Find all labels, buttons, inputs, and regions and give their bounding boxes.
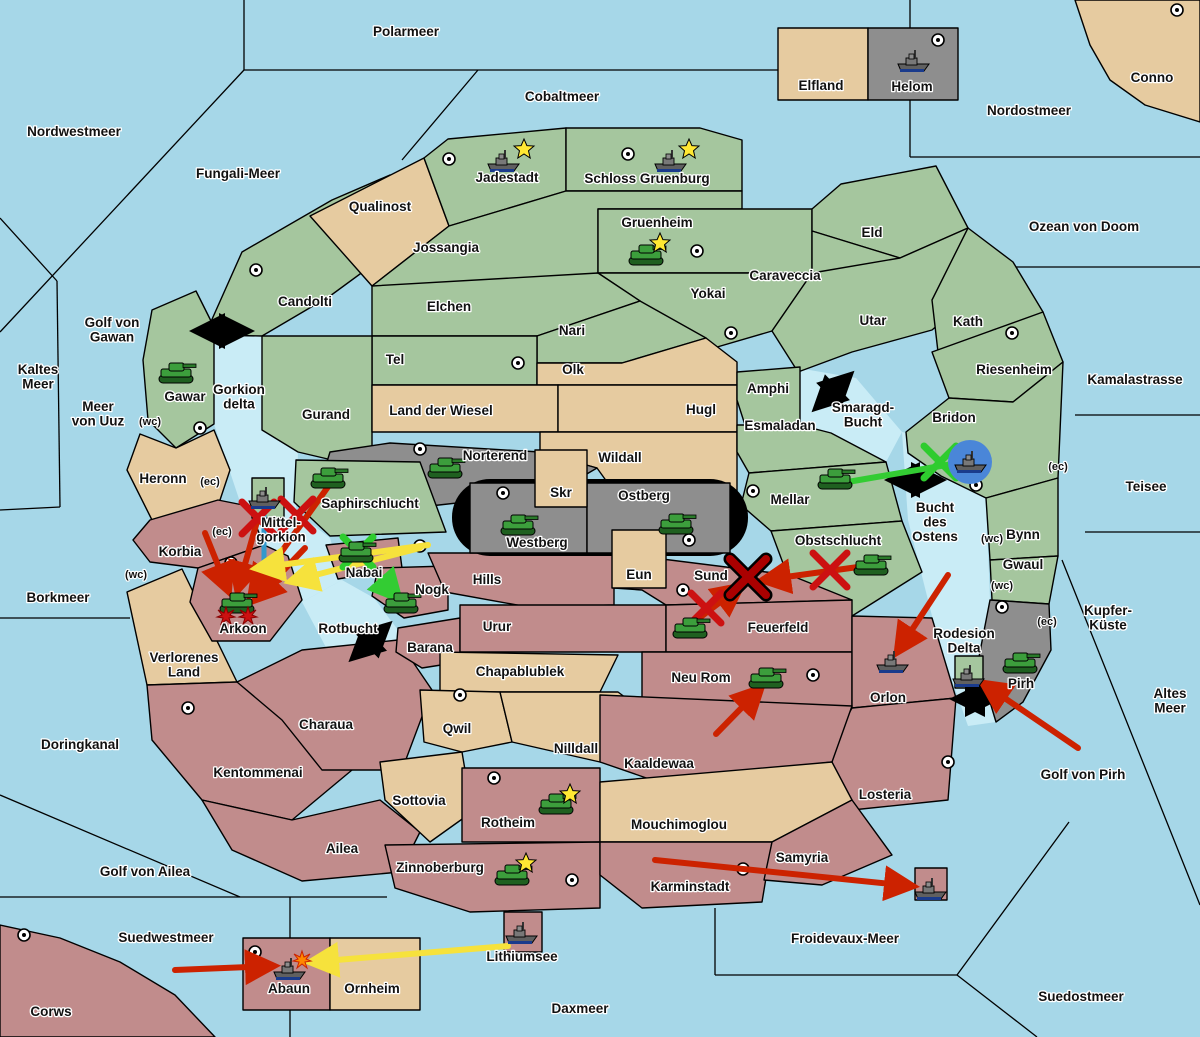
map-label: Elfland [798,78,843,93]
map-label: Hugl [686,402,716,417]
map-label: (ec) [200,476,220,488]
capital-marker [512,357,524,369]
map-label: Nabai [346,565,383,580]
map-label: Kath [953,314,983,329]
map-label: Daxmeer [551,1001,609,1016]
map-label: Doringkanal [41,737,119,752]
map-label: Charaua [299,717,354,732]
map-label: Rotheim [481,815,535,830]
map-label: Westberg [506,535,567,550]
map-label: Qualinost [349,199,412,214]
red-attack-arrow [175,966,272,970]
map-label: Neu Rom [671,670,730,685]
map-label: Helom [891,79,932,94]
capital-marker [566,874,578,886]
map-label: Golf von Pirh [1041,767,1126,782]
map-label: Gruenheim [621,215,692,230]
capital-marker [1171,4,1183,16]
capital-marker [194,422,206,434]
capital-marker [182,702,194,714]
capital-marker [691,245,703,257]
map-label: Mittel-gorkion [256,515,306,545]
map-label: Barana [407,640,453,655]
map-label: Kaaldewaa [624,756,694,771]
map-label: Golf vonGawan [85,315,140,345]
map-label: Urur [483,619,512,634]
capital-marker [747,485,759,497]
capital-marker [942,756,954,768]
capital-marker [677,584,689,596]
capital-marker [932,34,944,46]
map-label: Ozean von Doom [1029,219,1139,234]
map-label: Nordwestmeer [27,124,122,139]
map-label: Karminstadt [651,879,730,894]
map-label: Froidevaux-Meer [791,931,900,946]
map-label: Arkoon [219,621,266,636]
region-amphi[interactable] [737,367,800,425]
map-label: Gurand [302,407,350,422]
map-label: Nogk [415,582,449,597]
map-label: Yokai [690,286,725,301]
map-label: Obstschlucht [795,533,882,548]
capital-marker [622,148,634,160]
map-label: Kamalastrasse [1087,372,1183,387]
map-label: Mellar [770,492,810,507]
map-label: Candolti [278,294,332,309]
map-label: Eld [861,225,882,240]
map-label: Kentommenai [213,765,302,780]
capital-marker [250,264,262,276]
map-label: Jossangia [413,240,480,255]
map-label: Land der Wiesel [389,403,492,418]
map-label: Orlon [870,690,906,705]
map-label: (wc) [981,533,1003,545]
map-label: Ailea [326,841,359,856]
map-label: Mouchimoglou [631,817,727,832]
map-label: Lithiumsee [486,949,558,964]
map-label: Rotbucht [318,621,378,636]
map-label: Esmaladan [744,418,815,433]
region-ornheim[interactable] [330,938,420,1010]
map-label: Borkmeer [26,590,90,605]
capital-marker [488,772,500,784]
map-label: Saphirschlucht [321,496,419,511]
capital-marker [443,153,455,165]
map-label: (ec) [212,526,232,538]
map-label: Suedwestmeer [118,930,214,945]
map-label: (wc) [991,580,1013,592]
map-label: Abaun [268,981,310,996]
map-label: Suedostmeer [1038,989,1124,1004]
map-label: (wc) [139,416,161,428]
map-label: (ec) [1048,461,1068,473]
map-label: Hills [473,572,502,587]
map-label: Zinnoberburg [396,860,484,875]
map-label: Amphi [747,381,789,396]
map-label: Golf von Ailea [100,864,191,879]
map-label: Losteria [859,787,912,802]
map-label: Utar [859,313,887,328]
capital-marker [414,443,426,455]
map-label: Riesenheim [976,362,1052,377]
map-label: KaltesMeer [18,362,59,392]
map-label: (ec) [1037,616,1057,628]
map-label: Eun [626,567,652,582]
map-label: AltesMeer [1153,686,1186,716]
region-mellar[interactable] [741,462,902,531]
map-label: Ornheim [344,981,400,996]
map-label: Qwil [443,721,472,736]
region-rotheim[interactable] [462,768,600,842]
map-label: Corws [30,1004,71,1019]
map-label: Olk [562,362,584,377]
capital-marker [18,929,30,941]
capital-marker [807,669,819,681]
capital-marker [249,946,261,958]
capital-marker [725,327,737,339]
map-label: Elchen [427,299,471,314]
map-label: Fungali-Meer [196,166,281,181]
map-label: Conno [1131,70,1174,85]
map-label: Nordostmeer [987,103,1072,118]
map-label: Kupfer-Küste [1084,603,1132,633]
map-label: Nari [559,323,585,338]
map-label: Nilldall [554,741,598,756]
capital-marker [1006,327,1018,339]
map-label: Feuerfeld [748,620,809,635]
wargame-map: PolarmeerCobaltmeerNordostmeerNordwestme… [0,0,1200,1037]
map-label: (wc) [125,569,147,581]
map-label: Tel [386,352,405,367]
capital-marker [225,557,237,569]
map-label: Pirh [1008,676,1034,691]
game-map-stage: PolarmeerCobaltmeerNordostmeerNordwestme… [0,0,1200,1037]
map-label: Schloss Gruenburg [584,171,709,186]
map-label: Heronn [139,471,186,486]
map-label: Sottovia [392,793,446,808]
map-label: Cobaltmeer [525,89,600,104]
capital-marker [683,534,695,546]
map-label: Jadestadt [475,170,539,185]
map-label: Bridon [932,410,976,425]
capital-marker [996,601,1008,613]
map-label: Chapablublek [476,664,565,679]
map-label: Norterend [463,448,528,463]
map-label: Korbia [159,544,202,559]
map-label: Gawar [164,389,206,404]
map-label: Ostberg [618,488,670,503]
map-label: Polarmeer [373,24,440,39]
map-label: Samyria [776,850,829,865]
map-label: Bynn [1006,527,1040,542]
map-label: Teisee [1125,479,1167,494]
map-label: Skr [550,485,573,500]
map-label: Gwaul [1003,557,1044,572]
map-label: Wildall [598,450,641,465]
capital-marker [497,487,509,499]
map-label: Caraveccia [749,268,821,283]
capital-marker [454,689,466,701]
map-label: Sund [694,568,728,583]
